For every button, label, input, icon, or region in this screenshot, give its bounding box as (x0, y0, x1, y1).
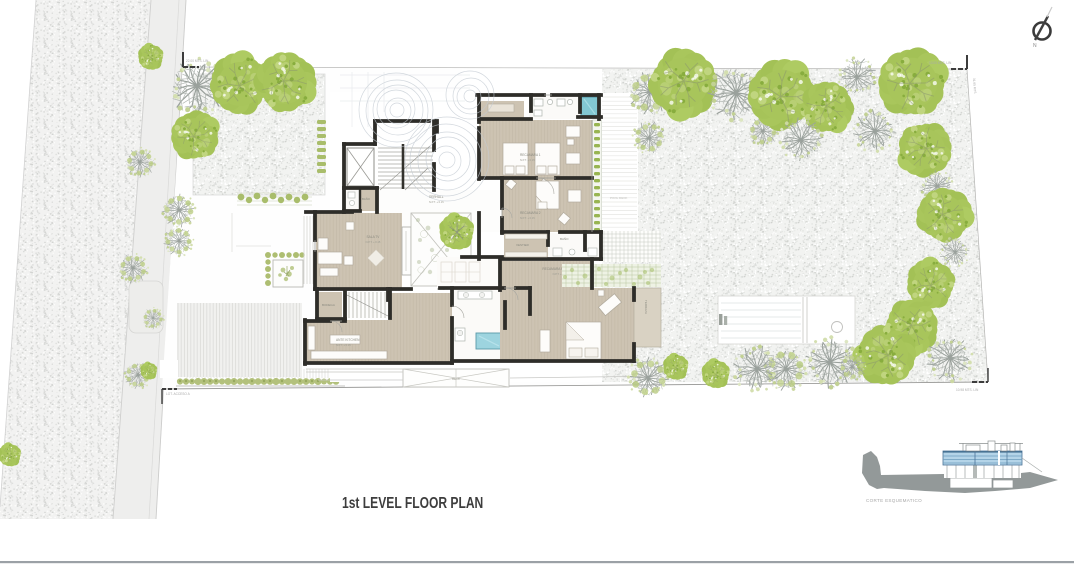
svg-text:CORTE ESQUEMATICO: CORTE ESQUEMATICO (866, 498, 922, 503)
svg-text:N: N (1033, 43, 1037, 49)
svg-text:1st LEVEL FLOOR PLAN: 1st LEVEL FLOOR PLAN (342, 494, 483, 512)
svg-text:BAÑO: BAÑO (362, 196, 371, 201)
svg-text:LOT. ACCESO A: LOT. ACCESO A (166, 392, 191, 396)
svg-text:RECAMARA 1: RECAMARA 1 (520, 153, 541, 157)
svg-text:10.00 MTS. LIN: 10.00 MTS. LIN (929, 61, 952, 65)
svg-text:SALA TV: SALA TV (367, 235, 381, 239)
svg-text:RECAMARA 2: RECAMARA 2 (520, 211, 541, 215)
svg-text:N.P.T. + 0.15: N.P.T. + 0.15 (520, 158, 535, 162)
svg-text:N.P.T. + 0.15: N.P.T. + 0.15 (520, 216, 535, 220)
svg-text:22.00 MTS. LIN: 22.00 MTS. LIN (186, 59, 209, 63)
svg-text:ANTE KITCHEN: ANTE KITCHEN (336, 338, 360, 342)
svg-text:N.P.T. + 0.15: N.P.T. + 0.15 (366, 240, 381, 244)
svg-text:POOL DECK: POOL DECK (610, 196, 627, 200)
svg-text:DECK: DECK (452, 377, 460, 381)
svg-text:VESTIER: VESTIER (516, 243, 530, 247)
svg-text:BAÑO: BAÑO (560, 236, 569, 241)
svg-text:10.98 MTS. LIN: 10.98 MTS. LIN (956, 388, 979, 392)
svg-text:N.P.T. + 0.15: N.P.T. + 0.15 (336, 343, 351, 347)
svg-text:BODEGA: BODEGA (322, 303, 335, 307)
svg-text:TERRAZA: TERRAZA (644, 300, 648, 314)
